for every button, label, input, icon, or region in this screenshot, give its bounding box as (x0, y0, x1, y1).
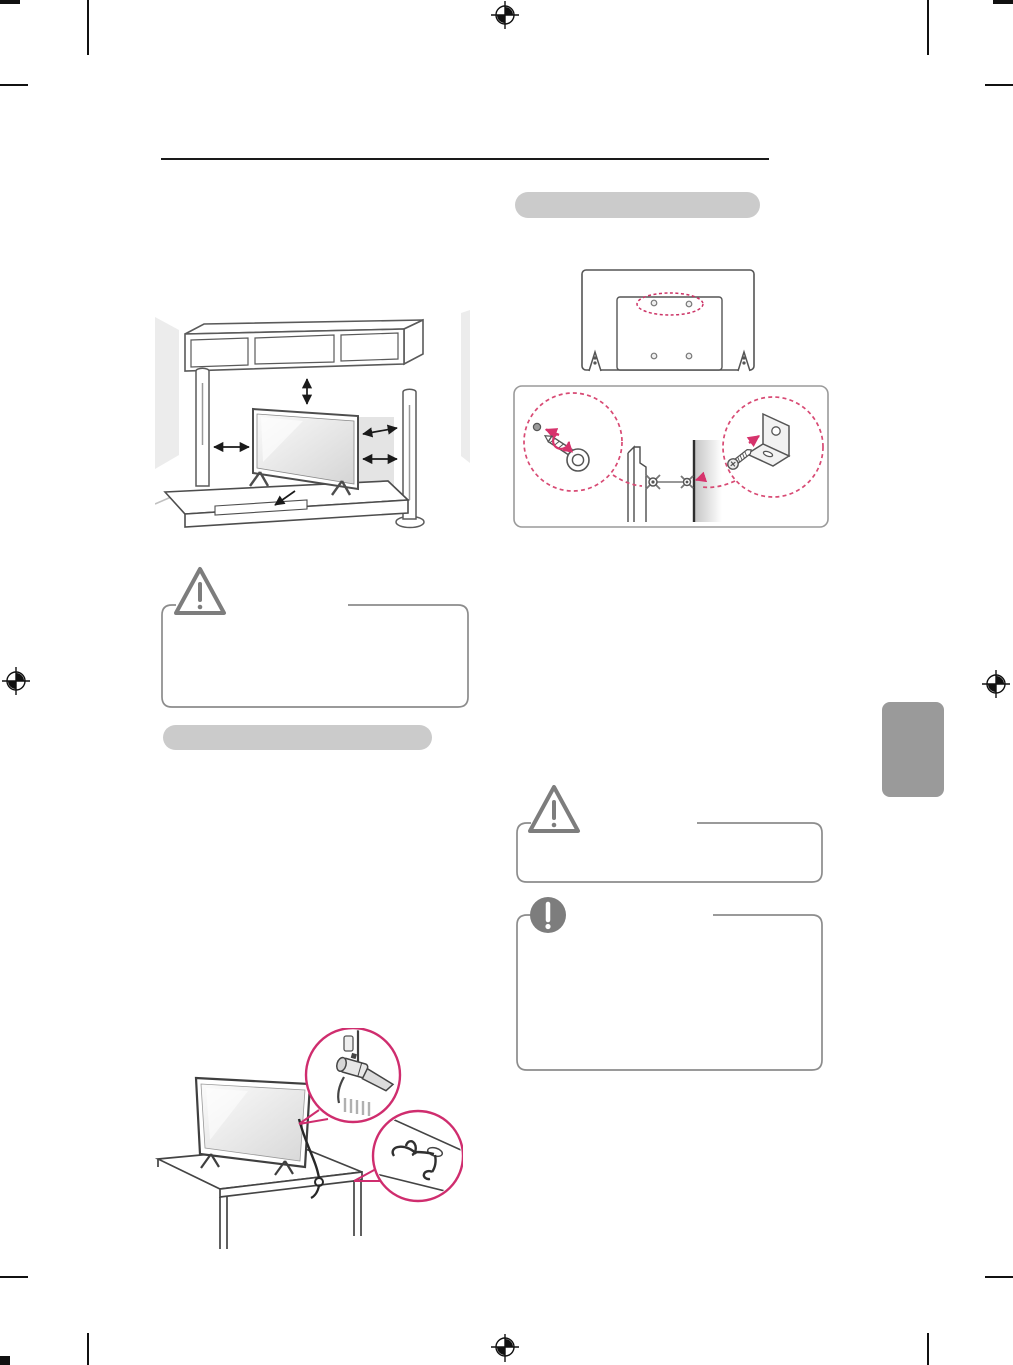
cable-callout-circle (354, 1111, 463, 1201)
registration-target-icon (1, 666, 31, 696)
wall-shadow (353, 417, 394, 489)
warning-triangle-icon (530, 787, 578, 831)
crop-mark-top-left (87, 0, 89, 55)
clearance-illustration (155, 305, 470, 540)
edge-tick-left-upper (0, 84, 28, 86)
crop-mark-bottom-right (927, 1333, 929, 1365)
corner-mark-bottom-left (0, 1356, 10, 1365)
caution-box-left (160, 560, 472, 710)
registration-target-icon (490, 0, 520, 30)
tv-back-recess (617, 297, 722, 370)
header-rule (161, 158, 769, 160)
corner-mark-top-right (993, 0, 1013, 4)
note-exclamation-icon (530, 897, 566, 933)
note-box-border (517, 915, 822, 1070)
chapter-side-tab (882, 702, 944, 797)
warning-triangle-icon (176, 569, 224, 613)
anchoring-hardware-illustration (512, 383, 832, 533)
tv-rear-illustration (575, 265, 765, 380)
wall-right (461, 310, 470, 463)
section-bar-right (515, 192, 760, 218)
crop-mark-bottom-left (87, 1333, 89, 1365)
edge-tick-left-lower (0, 1276, 28, 1278)
wall-left (155, 317, 179, 469)
note-box (515, 893, 827, 1073)
tv-stand-table (165, 481, 408, 527)
television (250, 409, 358, 495)
manual-page: { "document": { "kind": "scanned user ma… (0, 0, 1013, 1365)
caution-box-right (515, 785, 827, 887)
speaker-left (196, 368, 209, 486)
securing-illustration (148, 1028, 463, 1256)
registration-target-icon (490, 1334, 520, 1365)
caution-box-border (162, 605, 468, 707)
crop-mark-top-right (927, 0, 929, 55)
corner-mark-top-left (0, 0, 20, 4)
edge-tick-right-upper (985, 84, 1013, 86)
edge-tick-right-lower (985, 1276, 1013, 1278)
registration-target-icon (981, 669, 1011, 699)
section-bar-left (163, 725, 432, 750)
wall-cabinet (185, 320, 423, 371)
